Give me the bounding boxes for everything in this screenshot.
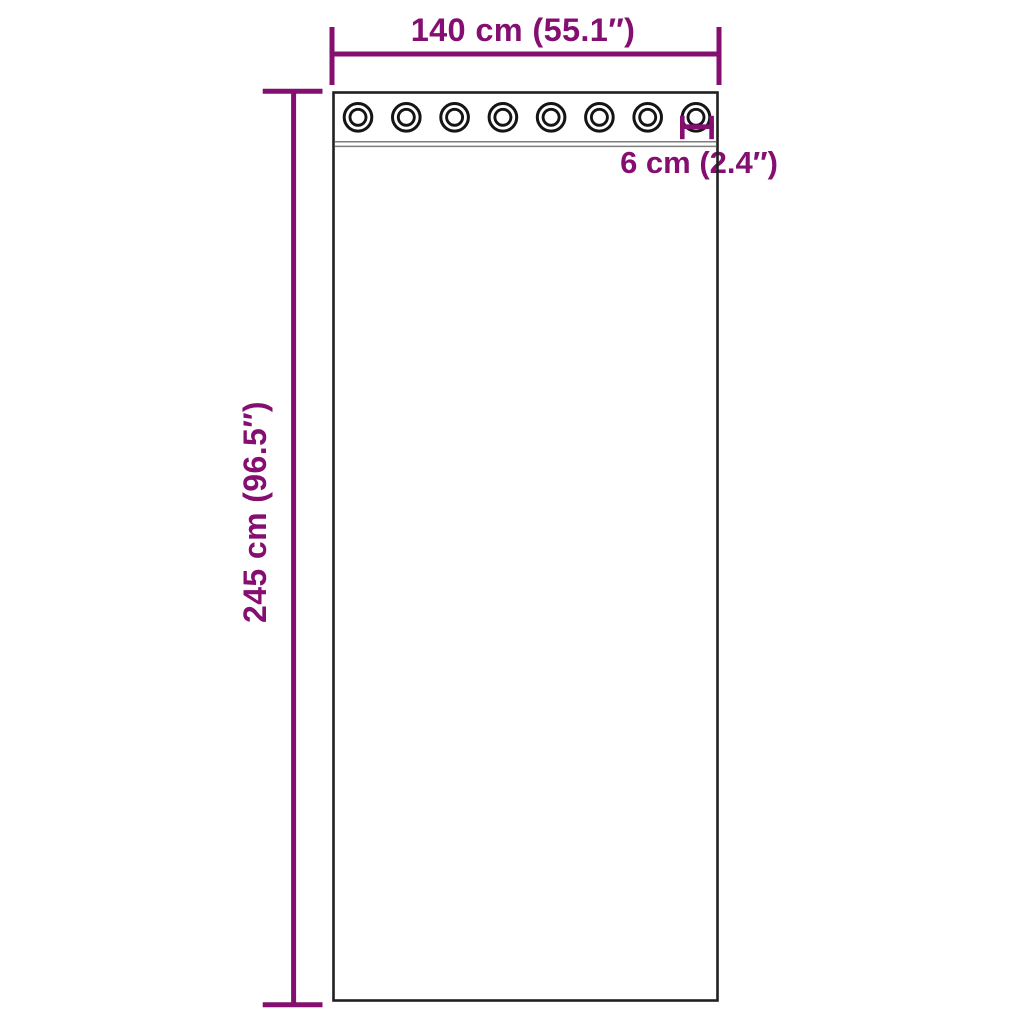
svg-text:6 cm (2.4″): 6 cm (2.4″) — [620, 145, 778, 180]
svg-text:245 cm (96.5″): 245 cm (96.5″) — [237, 401, 273, 623]
svg-text:140 cm (55.1″): 140 cm (55.1″) — [411, 12, 636, 48]
